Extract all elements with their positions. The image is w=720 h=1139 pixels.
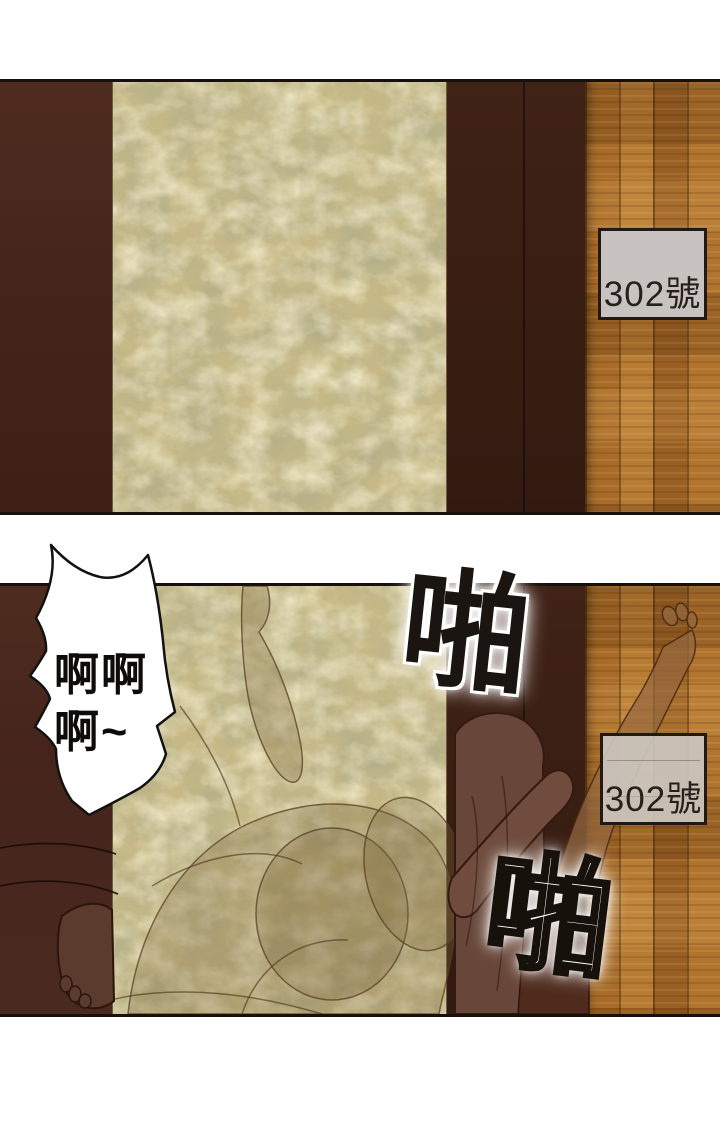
- door-frame-left: [0, 82, 112, 512]
- comic-page: 302號: [0, 0, 720, 1139]
- room-number-sign: 302號: [598, 228, 707, 320]
- sign-panel-line: [607, 760, 700, 761]
- sign-panel-line: [607, 796, 700, 797]
- sfx-slap-bottom: 啪: [479, 847, 619, 987]
- room-number-label: 302號: [605, 782, 702, 817]
- sfx-slap-top: 啪: [396, 564, 537, 705]
- room-number-label: 302號: [604, 277, 701, 312]
- speech-line-2: 啊~: [54, 703, 170, 760]
- panel-1: 302號: [0, 79, 720, 515]
- speech-bubble-text: 啊啊 啊~: [54, 646, 170, 760]
- gold-texture: [113, 82, 446, 512]
- room-number-sign: 302號: [600, 733, 707, 825]
- door-frame-right: [447, 82, 585, 512]
- panel-2: 302號 啪 啪 啊啊 啊~: [0, 583, 720, 1017]
- speech-line-1: 啊啊: [54, 646, 170, 703]
- door-gold-panel: [112, 82, 447, 512]
